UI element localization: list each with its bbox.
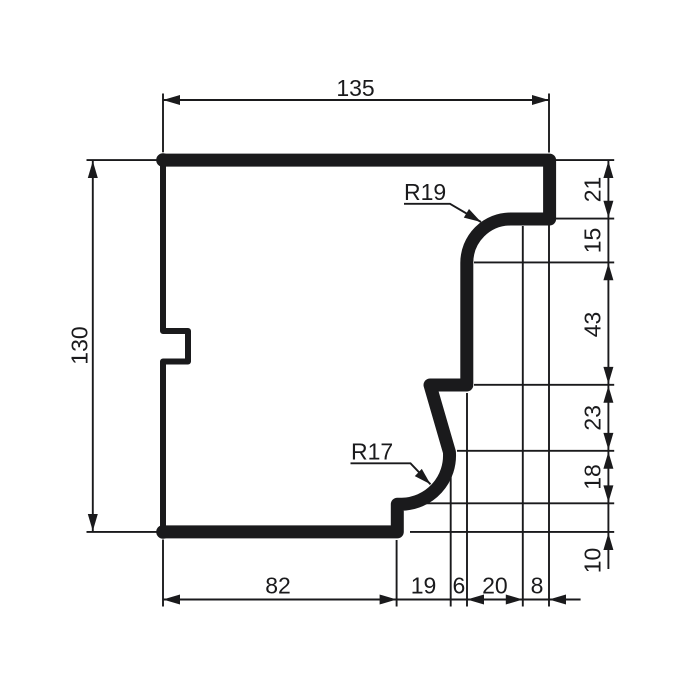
svg-text:18: 18 <box>579 464 605 490</box>
svg-text:19: 19 <box>411 573 437 599</box>
svg-text:R19: R19 <box>404 179 446 205</box>
svg-text:15: 15 <box>579 228 605 254</box>
svg-text:130: 130 <box>67 326 93 364</box>
svg-text:43: 43 <box>579 312 605 338</box>
svg-text:6: 6 <box>453 573 466 599</box>
svg-text:20: 20 <box>482 573 508 599</box>
svg-text:23: 23 <box>579 405 605 431</box>
svg-text:82: 82 <box>265 573 291 599</box>
svg-text:135: 135 <box>336 75 374 101</box>
svg-text:10: 10 <box>579 548 605 574</box>
svg-text:8: 8 <box>531 573 544 599</box>
svg-text:R17: R17 <box>351 439 393 465</box>
svg-text:21: 21 <box>579 177 605 203</box>
